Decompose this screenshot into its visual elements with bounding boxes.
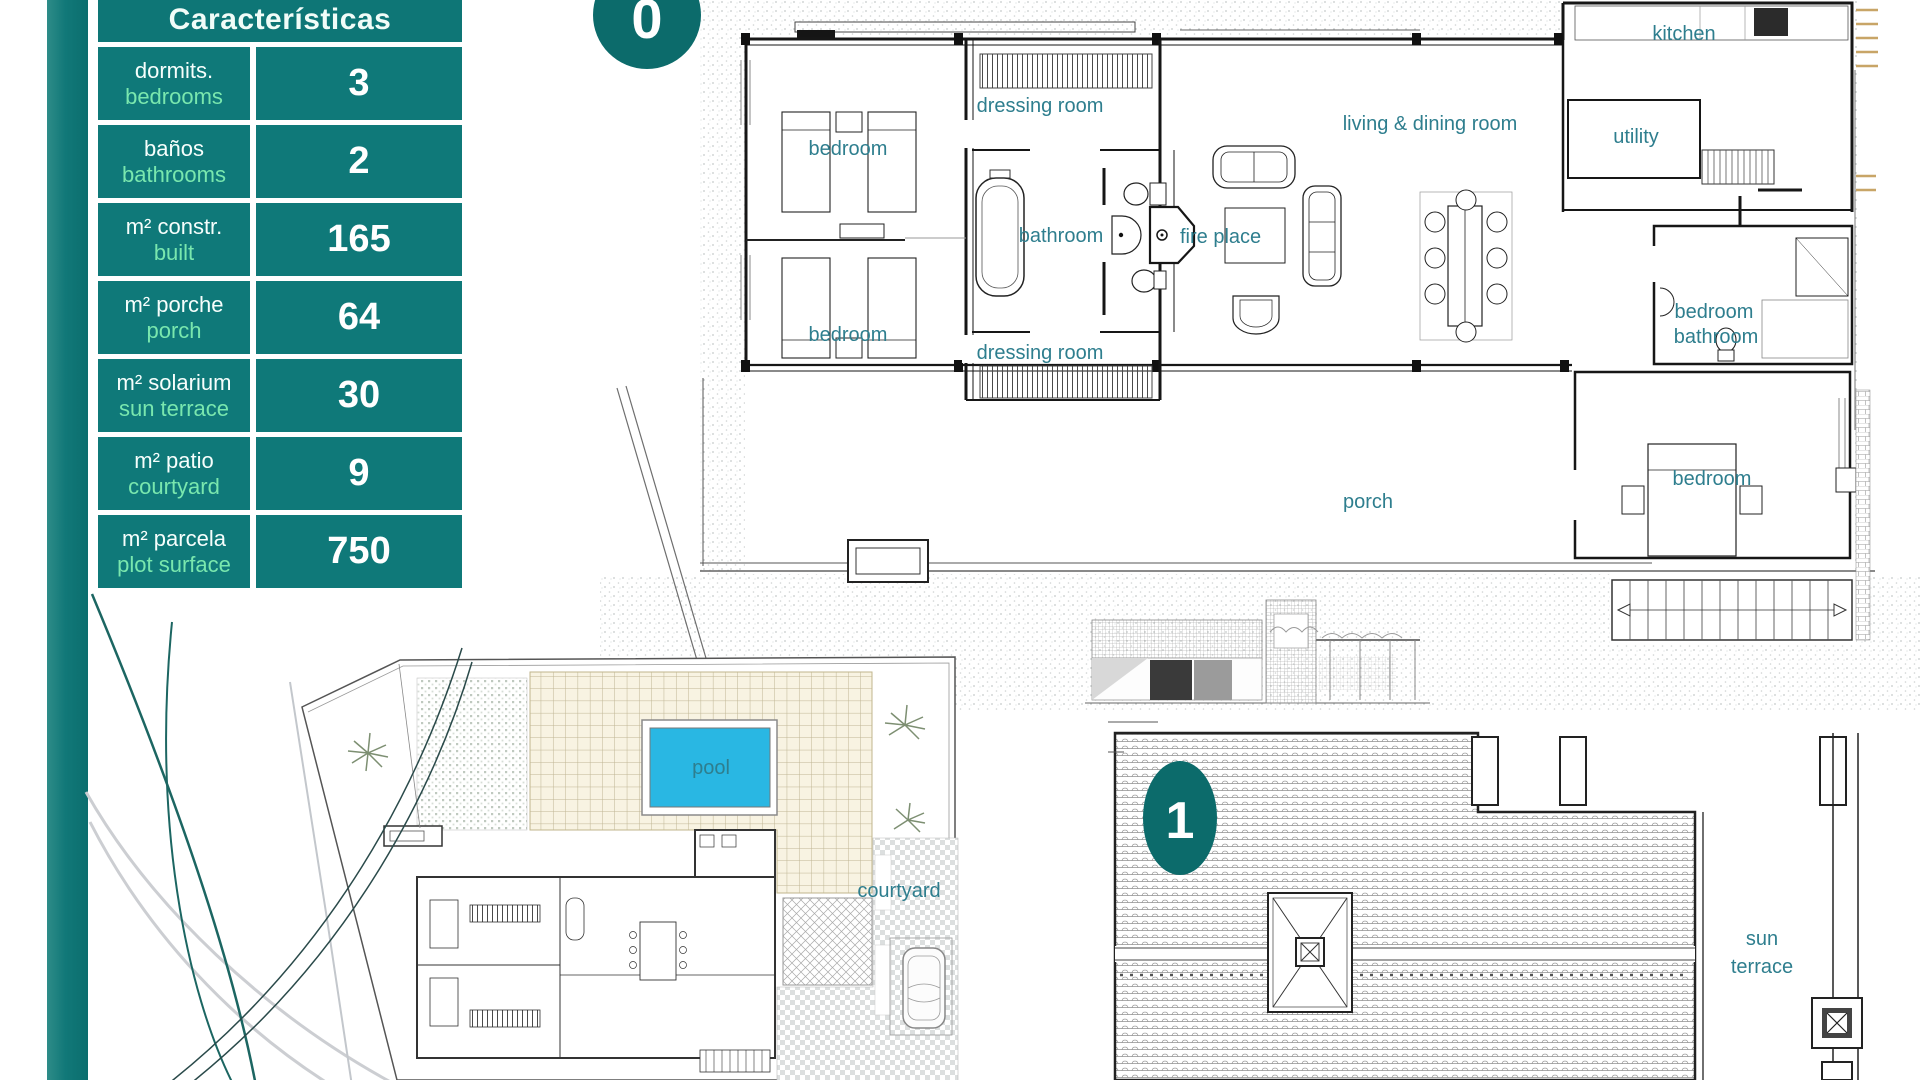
floor0-badge: 0: [593, 0, 701, 69]
row-label-es: m² constr.: [98, 214, 250, 240]
pool-label: pool: [692, 757, 730, 779]
skylight: [1268, 893, 1352, 1012]
table-row: dormits.bedrooms 3: [98, 47, 462, 120]
living-dining-label: living & dining room: [1343, 113, 1518, 135]
row-label-en: built: [98, 240, 250, 266]
row-label-en: porch: [98, 318, 250, 344]
row-label-en: courtyard: [98, 474, 250, 500]
bedroom-label: bedroom: [809, 324, 888, 346]
row-value: 165: [256, 203, 462, 276]
row-label-en: sun terrace: [98, 396, 250, 422]
row-value: 30: [256, 359, 462, 432]
bathroom-label: bathroom: [1019, 225, 1104, 247]
sun-terrace-label-line1: sun: [1746, 928, 1778, 950]
floor1-badge: 1: [1143, 761, 1217, 875]
porch-label: porch: [1343, 491, 1393, 513]
row-value: 9: [256, 437, 462, 510]
table-row: bañosbathrooms 2: [98, 125, 462, 198]
row-label-en: bedrooms: [98, 84, 250, 110]
table-row: m² solariumsun terrace 30: [98, 359, 462, 432]
utility-label: utility: [1613, 126, 1659, 148]
patio-paving: [783, 898, 872, 985]
kitchen-label: kitchen: [1652, 23, 1715, 45]
planter: [848, 540, 928, 582]
row-label-es: m² patio: [98, 448, 250, 474]
brick-strip: [1856, 390, 1870, 640]
suite-bedroom-label: bedroom: [1675, 301, 1754, 323]
floor0-plan: kitchen dressing room bedroom living & d…: [593, 0, 1878, 643]
courtyard-label: courtyard: [857, 880, 940, 902]
car: [903, 948, 945, 1028]
table-title: Características: [98, 0, 462, 42]
table-row: m² porcheporch 64: [98, 281, 462, 354]
floor1-roof-plan: sun terrace 1: [1108, 722, 1862, 1080]
exterior-stairs: [1612, 580, 1852, 640]
site-plan: pool: [302, 657, 958, 1080]
dressing-room-label: dressing room: [977, 342, 1104, 364]
row-label-es: m² porche: [98, 292, 250, 318]
pool: pool: [642, 720, 777, 815]
row-label-es: m² parcela: [98, 526, 250, 552]
characteristics-table: Características dormits.bedrooms 3 baños…: [98, 0, 462, 593]
row-value: 750: [256, 515, 462, 588]
svg-text:1: 1: [1166, 792, 1195, 850]
row-value: 64: [256, 281, 462, 354]
dining-set: [1420, 190, 1512, 342]
dressing-room-label: dressing room: [977, 95, 1104, 117]
page: Características dormits.bedrooms 3 baños…: [0, 0, 1920, 1080]
row-label-en: bathrooms: [98, 162, 250, 188]
suite-bathroom-label: bathroom: [1674, 326, 1759, 348]
row-value: 3: [256, 47, 462, 120]
row-value: 2: [256, 125, 462, 198]
br-bedroom-label: bedroom: [1673, 468, 1752, 490]
row-label-es: dormits.: [98, 58, 250, 84]
fireplace-label: fire place: [1180, 226, 1261, 248]
bedroom-label: bedroom: [809, 138, 888, 160]
row-label-es: m² solarium: [98, 370, 250, 396]
table-row: m² parcelaplot surface 750: [98, 515, 462, 588]
row-label-es: baños: [98, 136, 250, 162]
table-row: m² patiocourtyard 9: [98, 437, 462, 510]
row-label-en: plot surface: [98, 552, 250, 578]
table-row: m² constr.built 165: [98, 203, 462, 276]
sun-terrace-label-line2: terrace: [1731, 956, 1793, 978]
svg-text:0: 0: [631, 0, 662, 50]
